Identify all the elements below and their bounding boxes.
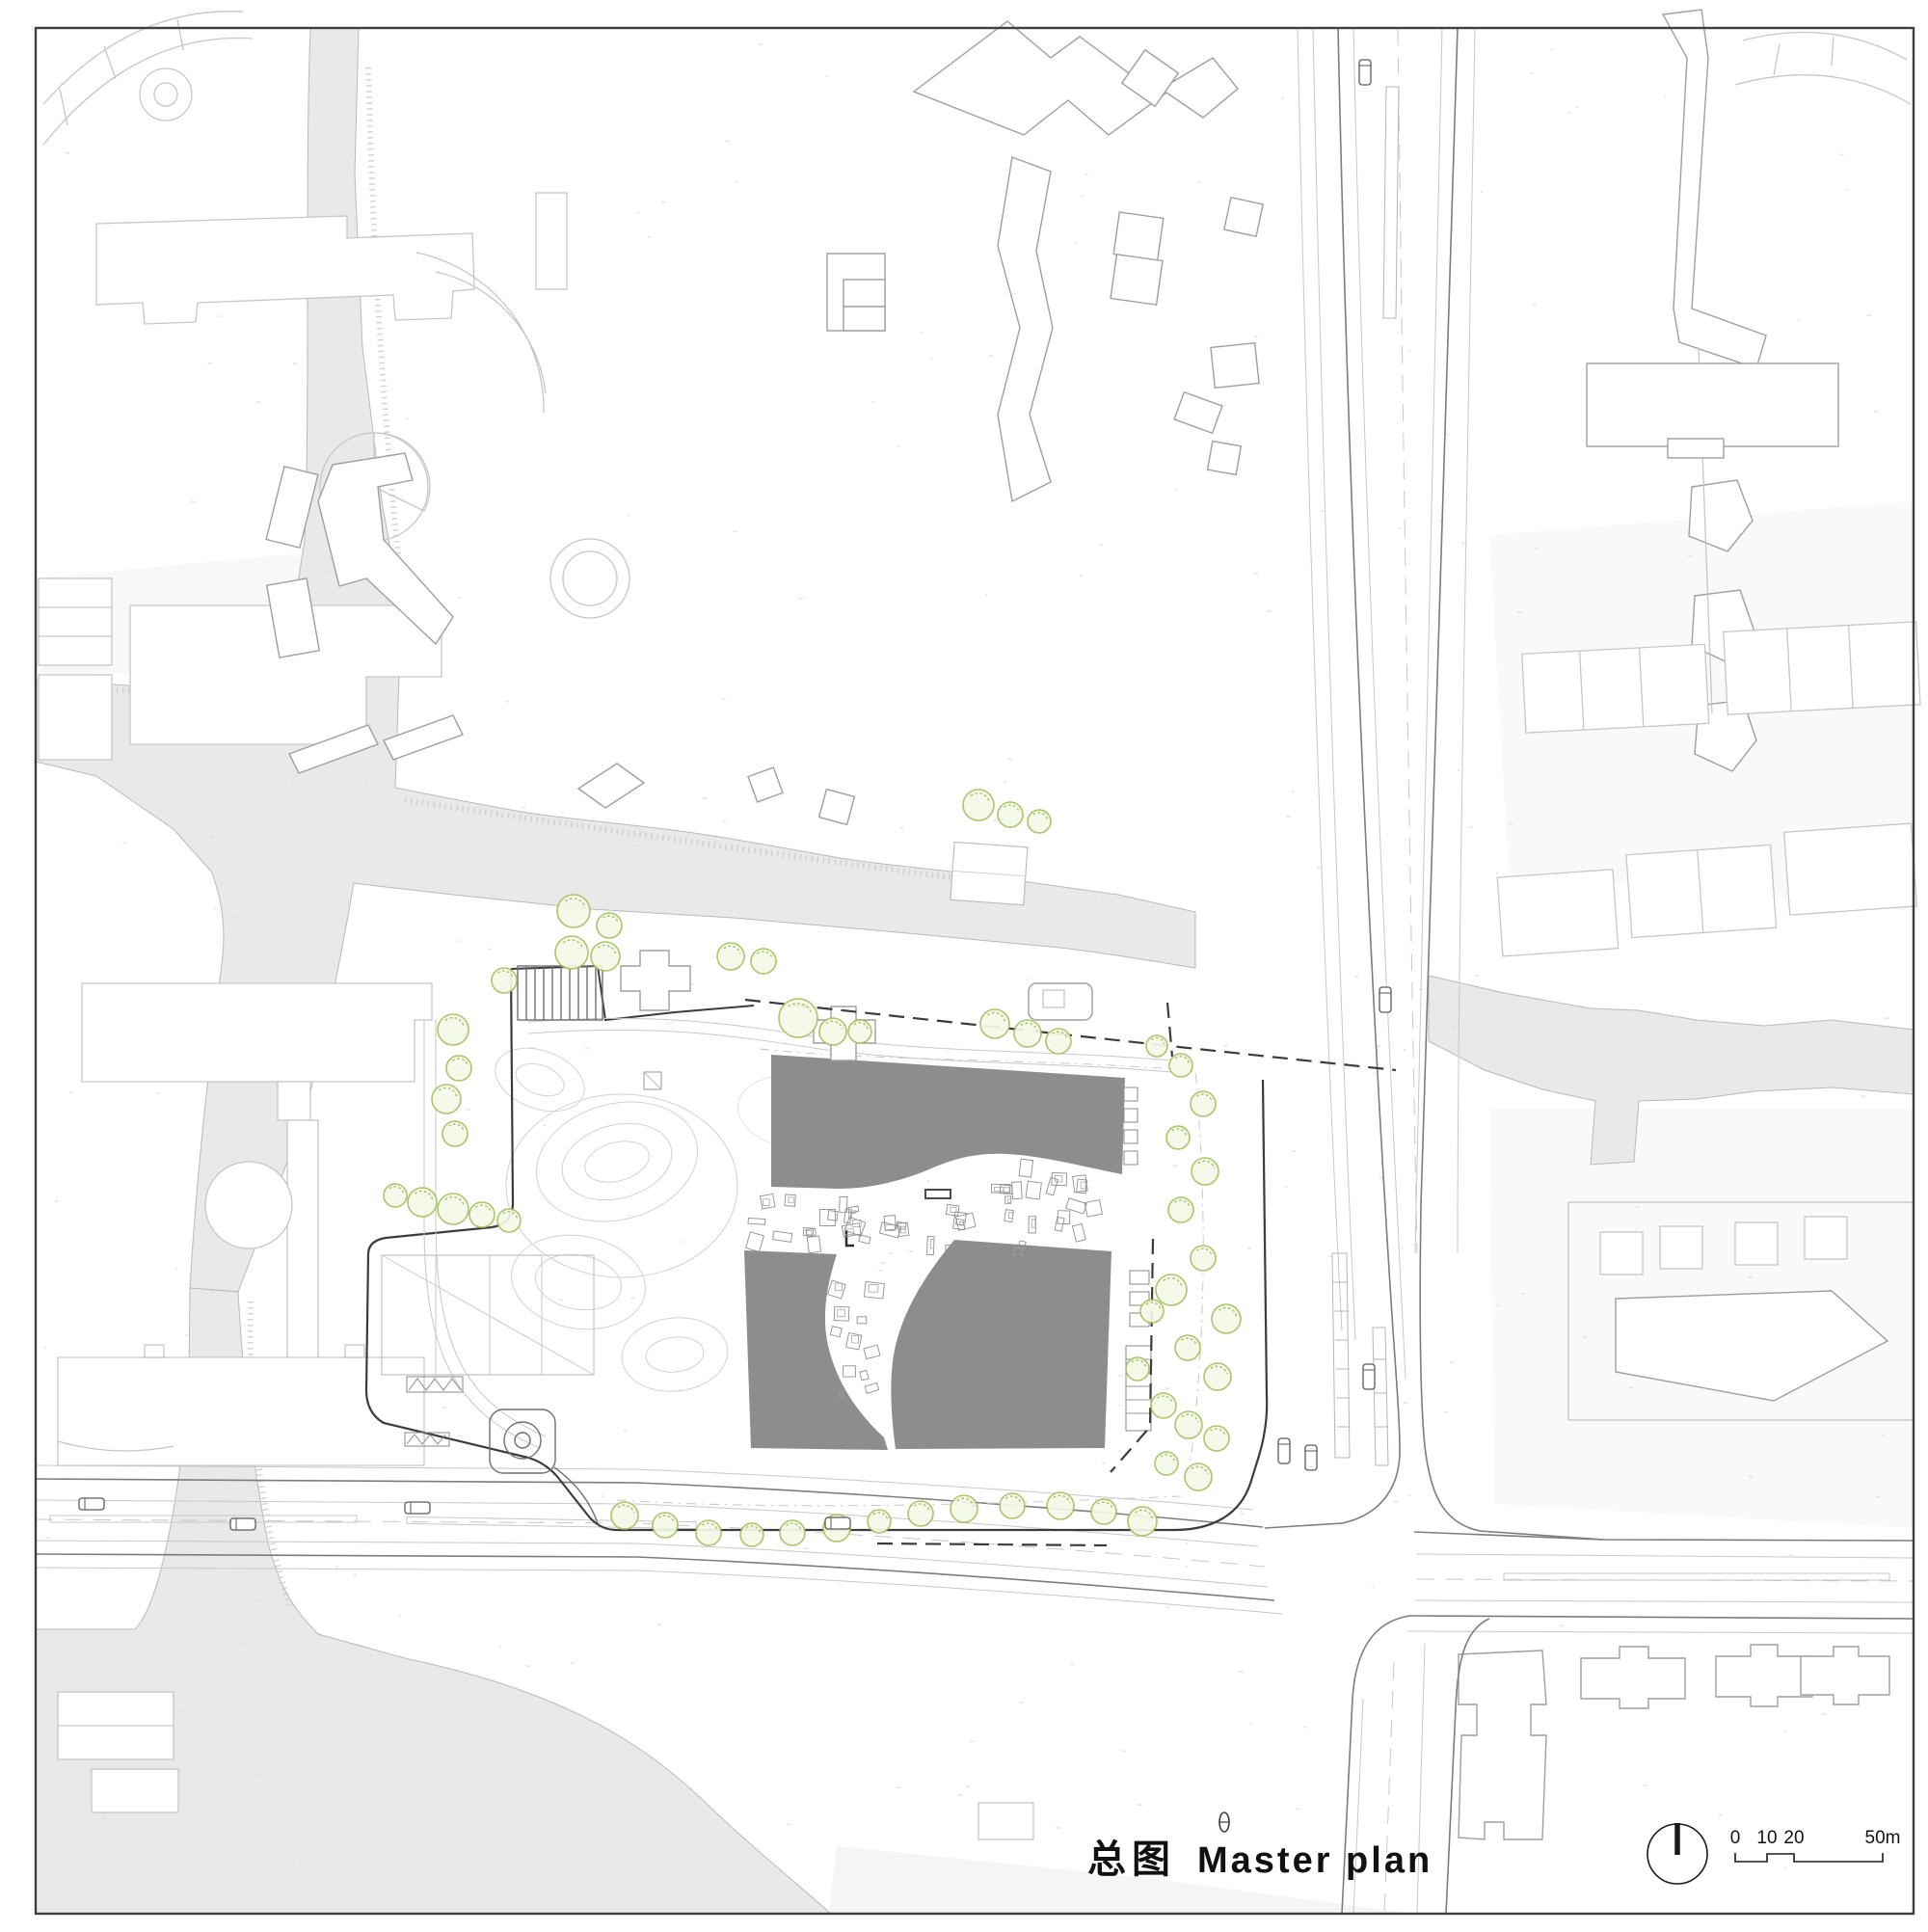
- scale-tick-label: 0: [1730, 1828, 1741, 1848]
- title-block: 总图 Master plan 0 10 20 50m: [1087, 1823, 1900, 1884]
- site-plan-canvas: 总图 Master plan 0 10 20 50m: [0, 0, 1928, 1927]
- scale-tick-label: 20: [1783, 1828, 1804, 1848]
- master-plan-drawing: 总图 Master plan 0 10 20 50m: [0, 0, 1928, 1927]
- existing-house: [621, 951, 690, 1010]
- building-mass-southeast: [891, 1240, 1111, 1449]
- scale-tick-label: 10: [1756, 1828, 1777, 1848]
- building-mass-southwest: [744, 1250, 888, 1450]
- river: [36, 28, 1914, 1914]
- parking-lot: [518, 966, 602, 1020]
- project-site: [366, 951, 1267, 1530]
- drawing-title-en: Master plan: [1197, 1840, 1433, 1881]
- scale-tick-label: 50m: [1865, 1828, 1901, 1848]
- context-buildings-park: [266, 21, 1263, 824]
- north-arrow-icon: [1647, 1823, 1707, 1884]
- scale-bar: 0 10 20 50m: [1730, 1828, 1901, 1862]
- building-mass-north: [771, 1055, 1125, 1189]
- drawing-title-zh: 总图: [1087, 1838, 1176, 1881]
